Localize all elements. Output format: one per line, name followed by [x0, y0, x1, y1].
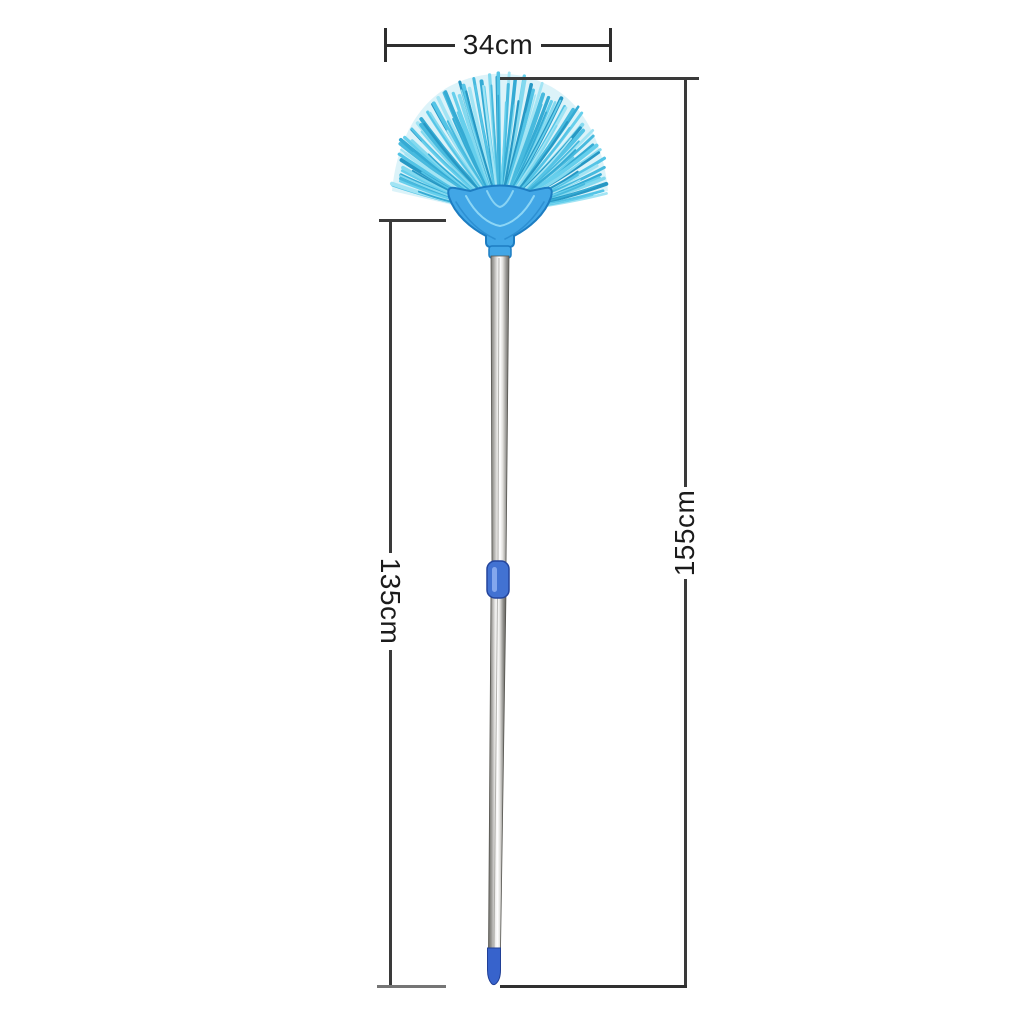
dimension-tick — [384, 28, 387, 62]
dimension-tick — [500, 985, 687, 988]
dimension-tick — [500, 77, 699, 80]
dimension-line — [541, 44, 612, 47]
pole-upper-section — [491, 256, 509, 565]
brush-width-label: 34cm — [455, 31, 541, 59]
dimension-line — [389, 650, 392, 987]
dimension-line — [384, 44, 455, 47]
product-dimension-figure: 34cm 135cm 155cm — [0, 0, 1024, 1024]
brush-width-dimension: 34cm — [384, 28, 612, 62]
dimension-tick — [377, 985, 446, 988]
dimension-tick — [609, 28, 612, 62]
dimension-line — [389, 221, 392, 553]
handle-length-label: 135cm — [376, 558, 404, 645]
grip-highlight — [492, 567, 497, 592]
total-length-label: 155cm — [671, 490, 699, 577]
pole-tip-cap — [488, 948, 501, 985]
pole-grip-collar — [487, 561, 509, 598]
dimension-line — [684, 579, 687, 986]
telescopic-pole — [487, 256, 509, 985]
brush-holder — [448, 186, 552, 259]
dimension-line — [684, 79, 687, 487]
broom-product-image — [0, 0, 1024, 1024]
